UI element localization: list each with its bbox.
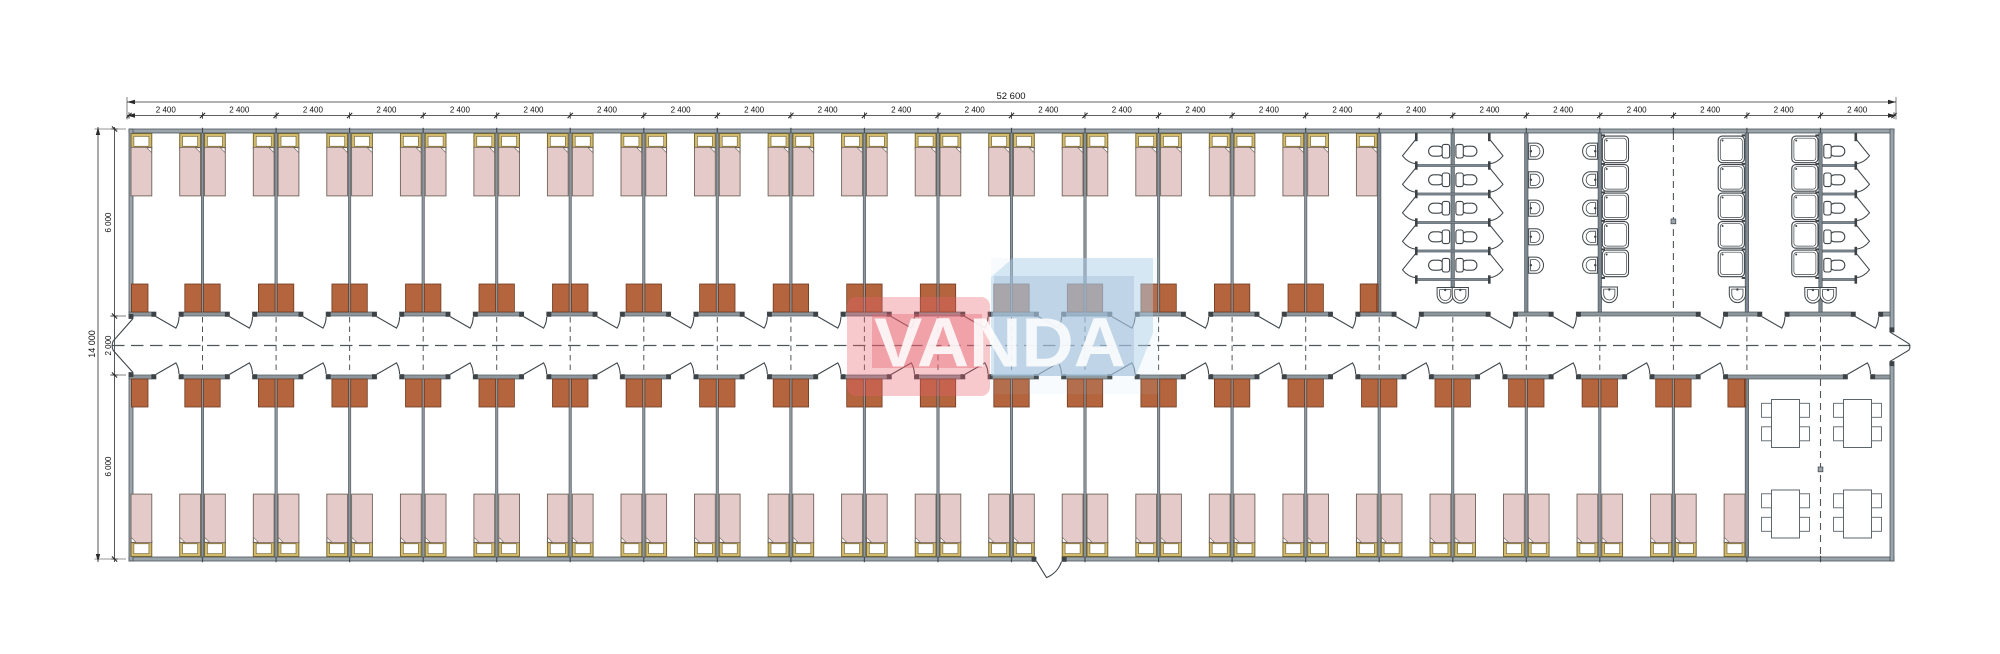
svg-text:2 400: 2 400 [450,105,471,114]
svg-text:2 400: 2 400 [1259,105,1280,114]
svg-text:2 400: 2 400 [1332,105,1353,114]
svg-text:2 400: 2 400 [1479,105,1500,114]
svg-text:2 400: 2 400 [891,105,912,114]
svg-text:2 400: 2 400 [156,105,177,114]
svg-text:2 400: 2 400 [744,105,765,114]
svg-text:VANDA: VANDA [874,304,1126,382]
svg-text:6 000: 6 000 [104,456,113,477]
svg-text:2 400: 2 400 [1553,105,1574,114]
svg-text:2 400: 2 400 [376,105,397,114]
svg-text:2 400: 2 400 [965,105,986,114]
svg-text:2 400: 2 400 [1112,105,1133,114]
svg-text:6 000: 6 000 [104,212,113,233]
svg-text:2 400: 2 400 [1774,105,1795,114]
svg-text:2 400: 2 400 [1406,105,1427,114]
svg-text:2 400: 2 400 [229,105,250,114]
svg-text:2 400: 2 400 [1627,105,1648,114]
svg-text:2 400: 2 400 [523,105,544,114]
svg-text:2 400: 2 400 [818,105,839,114]
svg-text:2 400: 2 400 [303,105,324,114]
svg-text:2 400: 2 400 [1700,105,1721,114]
svg-text:14 000: 14 000 [87,330,97,358]
svg-text:2 400: 2 400 [1185,105,1206,114]
svg-text:2 400: 2 400 [1847,105,1868,114]
svg-text:2 400: 2 400 [671,105,692,114]
svg-text:2 400: 2 400 [597,105,618,114]
svg-text:52 600: 52 600 [996,91,1025,102]
svg-text:2 400: 2 400 [1038,105,1059,114]
